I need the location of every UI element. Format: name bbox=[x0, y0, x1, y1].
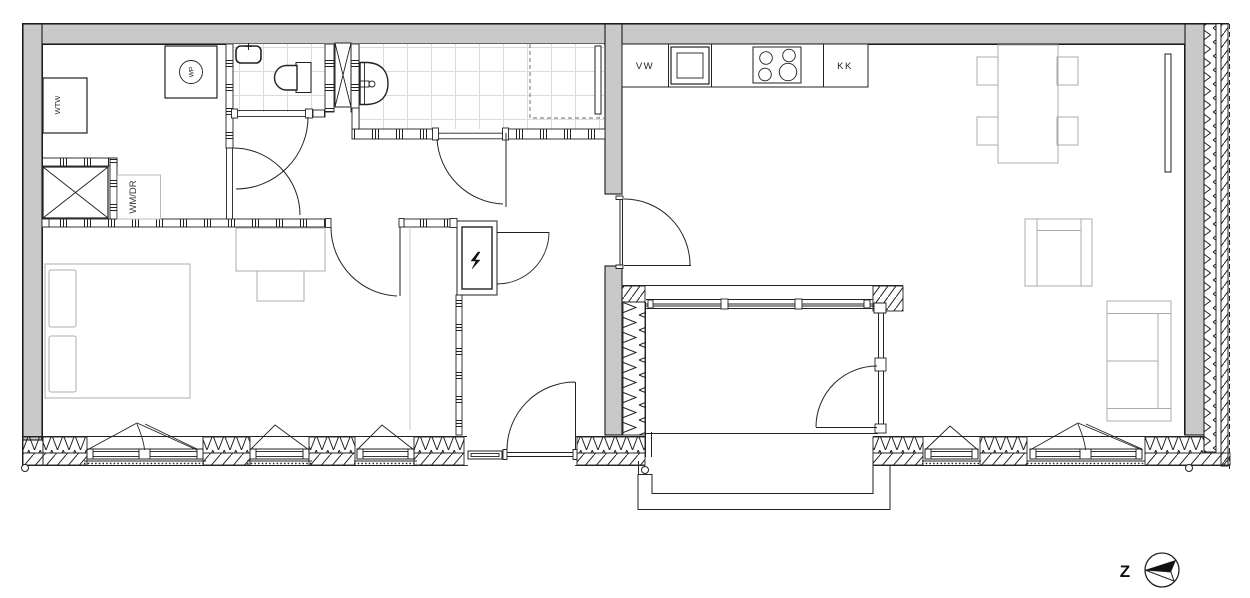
svg-text:KK: KK bbox=[837, 61, 853, 72]
svg-text:WM/DR: WM/DR bbox=[128, 180, 139, 213]
svg-text:Z: Z bbox=[1120, 562, 1130, 581]
svg-text:WP: WP bbox=[189, 67, 196, 77]
svg-text:VW: VW bbox=[636, 61, 654, 72]
svg-text:WTW: WTW bbox=[53, 95, 62, 115]
